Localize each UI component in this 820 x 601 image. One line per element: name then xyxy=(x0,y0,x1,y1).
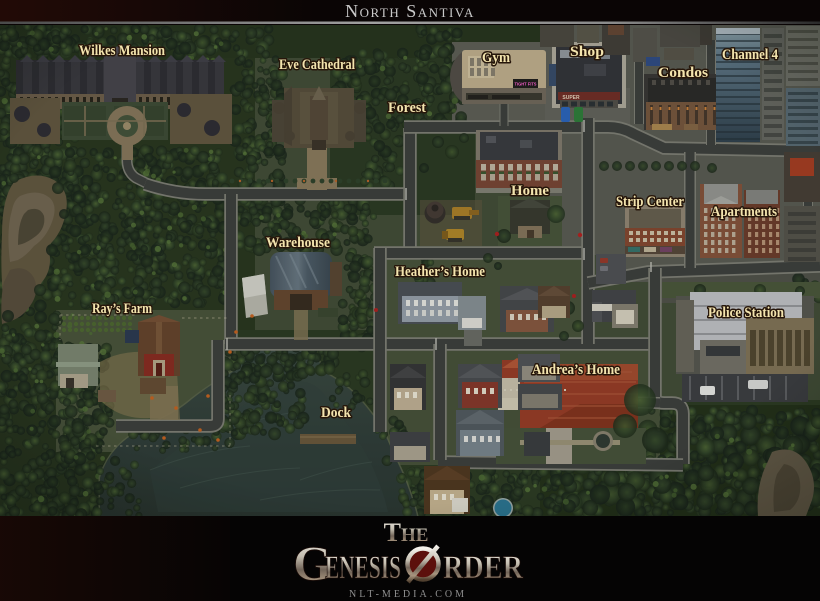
svg-text:Condos: Condos xyxy=(658,65,708,81)
svg-text:RDER: RDER xyxy=(443,550,524,586)
svg-text:ENESIS: ENESIS xyxy=(325,550,401,586)
svg-text:North Santiva: North Santiva xyxy=(345,1,475,21)
svg-text:Dock: Dock xyxy=(321,405,352,421)
svg-text:Police Station: Police Station xyxy=(708,305,784,321)
svg-text:Gym: Gym xyxy=(482,50,510,66)
svg-text:Channel 4: Channel 4 xyxy=(722,47,778,63)
svg-text:Home: Home xyxy=(511,183,550,199)
svg-text:Apartments: Apartments xyxy=(711,204,777,220)
svg-text:Heather’s Home: Heather’s Home xyxy=(395,264,485,280)
svg-text:Wilkes Mansion: Wilkes Mansion xyxy=(79,43,165,59)
svg-text:Shop: Shop xyxy=(570,44,604,60)
svg-text:Warehouse: Warehouse xyxy=(266,235,331,251)
svg-text:Forest: Forest xyxy=(388,100,426,116)
svg-text:Strip Center: Strip Center xyxy=(616,194,684,210)
svg-text:NLT-MEDIA.COM: NLT-MEDIA.COM xyxy=(349,589,467,600)
svg-text:Andrea’s Home: Andrea’s Home xyxy=(532,362,621,378)
svg-text:Eve Cathedral: Eve Cathedral xyxy=(279,57,355,73)
svg-text:Ray’s Farm: Ray’s Farm xyxy=(92,301,152,317)
